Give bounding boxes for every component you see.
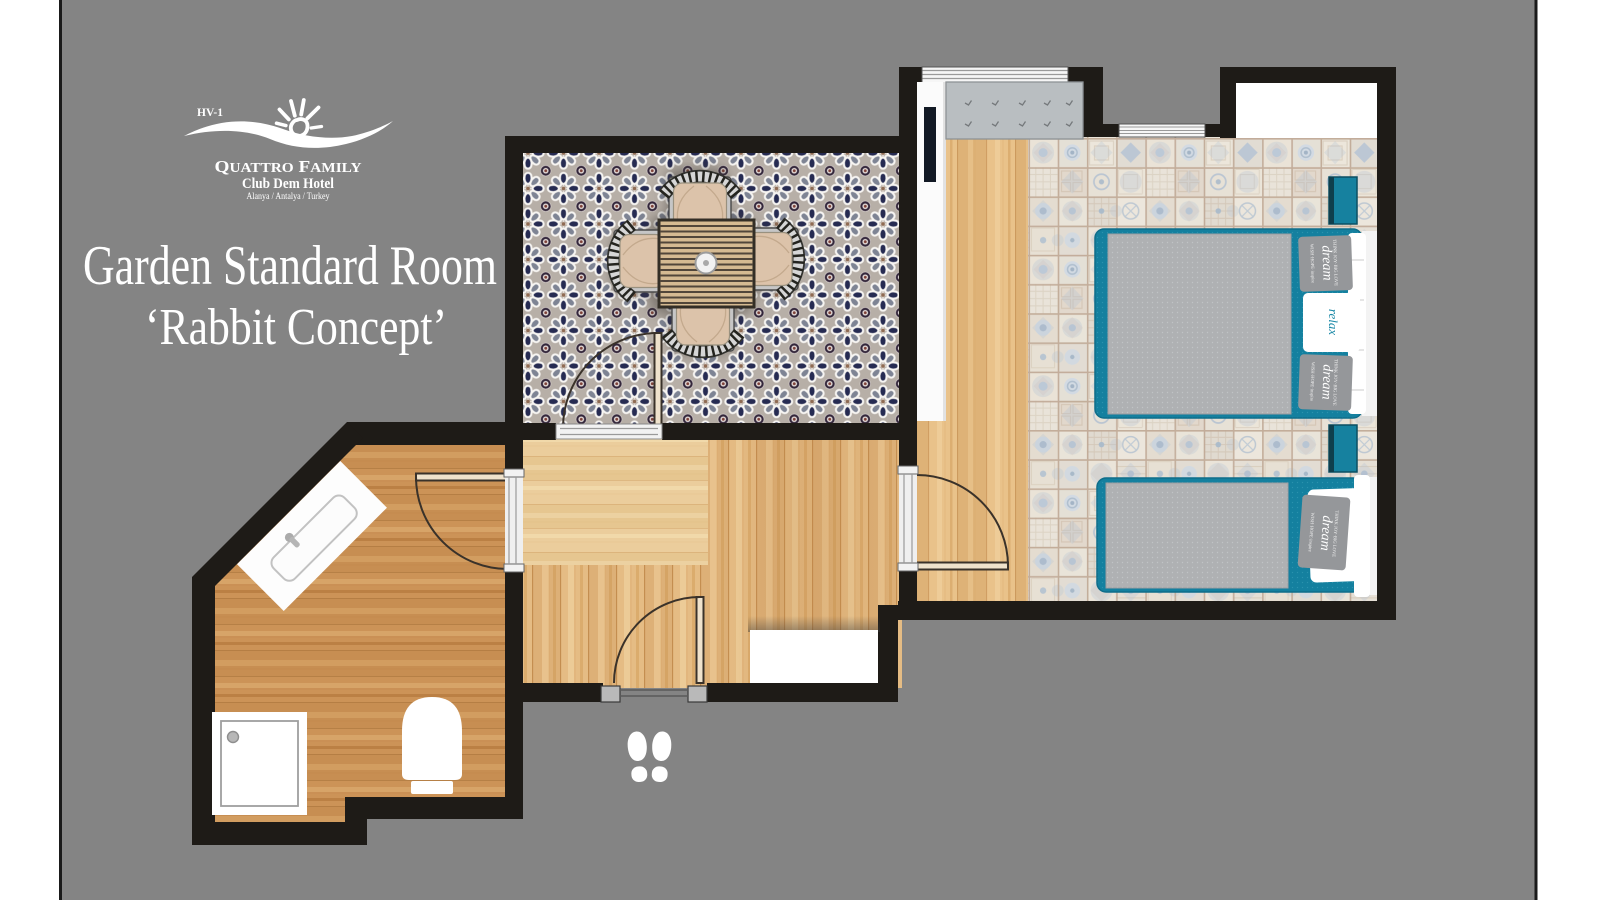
svg-text:Club Dem Hotel: Club Dem Hotel: [242, 176, 334, 192]
svg-text:relax: relax: [1326, 309, 1341, 335]
svg-text:‘Rabbit Concept’: ‘Rabbit Concept’: [145, 299, 447, 356]
svg-text:QUATTRO FAMILY: QUATTRO FAMILY: [215, 157, 362, 176]
svg-text:dream: dream: [1317, 515, 1334, 551]
svg-text:Alanya / Antalya / Turkey: Alanya / Antalya / Turkey: [247, 191, 330, 201]
svg-text:Garden Standard Room: Garden Standard Room: [83, 235, 497, 297]
svg-text:HV-1: HV-1: [197, 107, 223, 119]
svg-text:dream: dream: [1318, 245, 1334, 281]
svg-text:dream: dream: [1318, 364, 1334, 400]
